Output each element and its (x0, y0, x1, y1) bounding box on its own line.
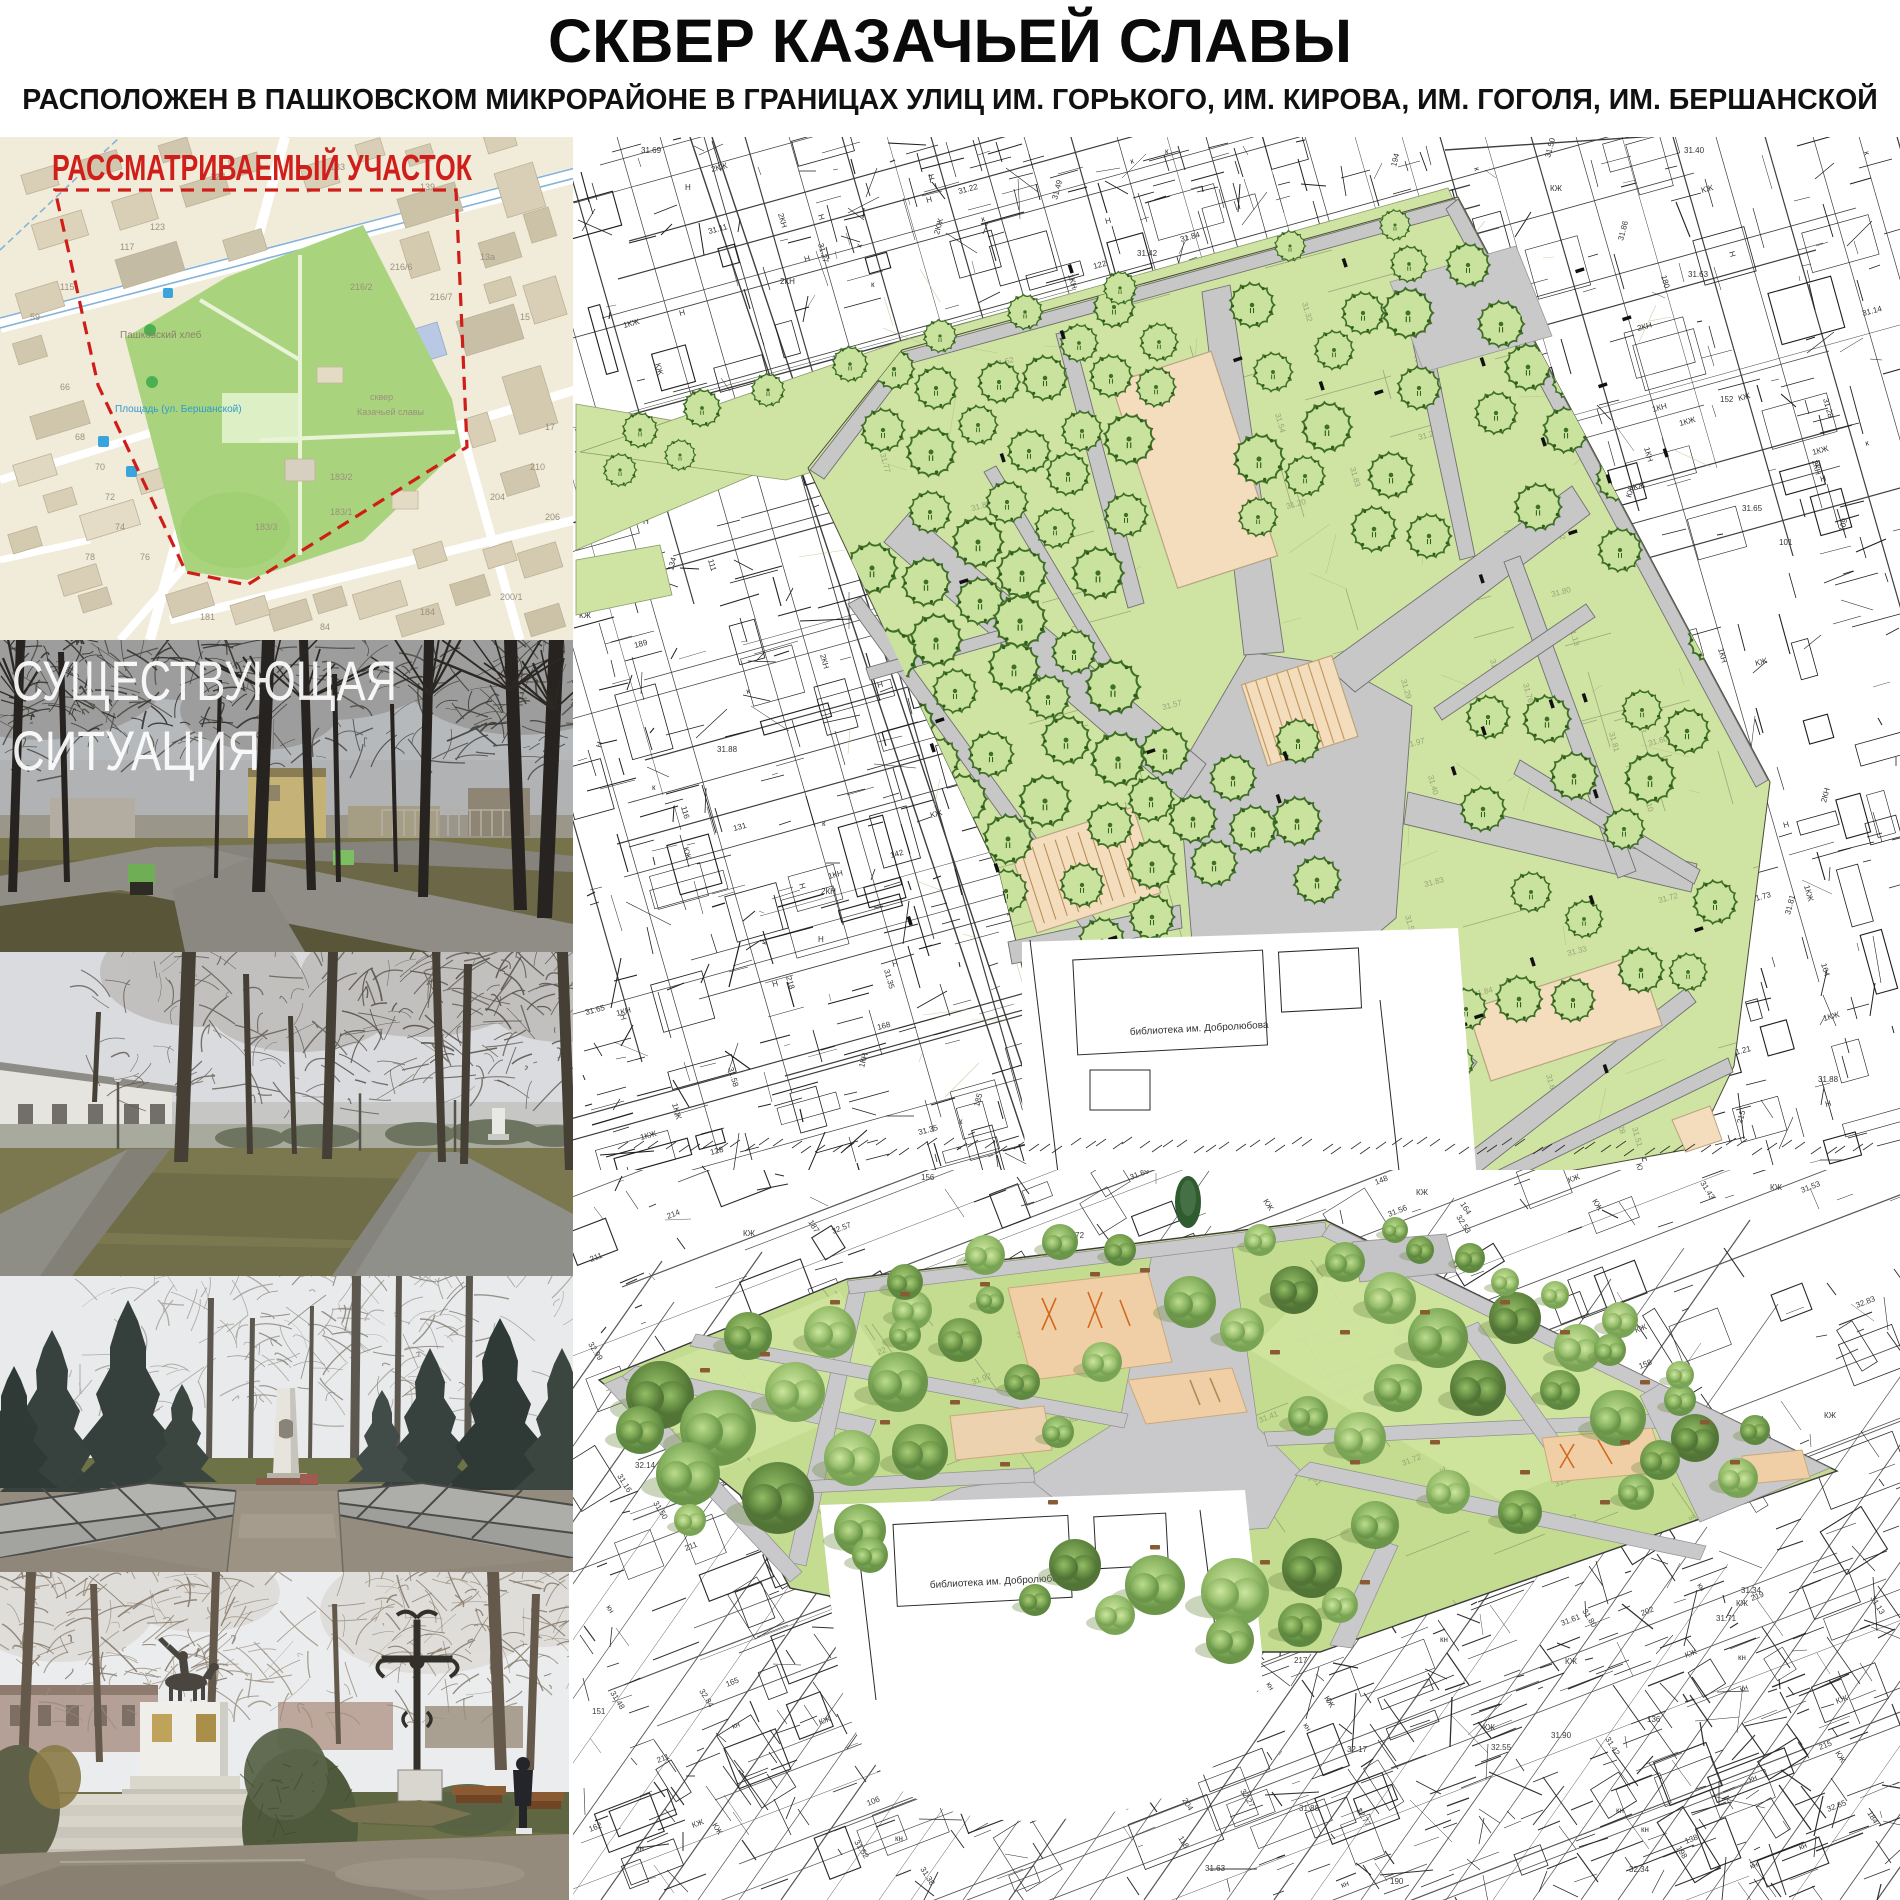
svg-text:13a: 13a (480, 252, 495, 262)
svg-text:32.17: 32.17 (1347, 1745, 1368, 1754)
svg-text:31.71: 31.71 (1716, 1614, 1737, 1623)
svg-text:Н: Н (818, 935, 824, 944)
svg-text:Казачьей славы: Казачьей славы (357, 407, 424, 417)
svg-text:210: 210 (530, 462, 545, 472)
svg-text:101: 101 (1779, 538, 1793, 547)
svg-text:151: 151 (592, 1707, 606, 1716)
svg-text:216/6: 216/6 (390, 262, 413, 272)
svg-text:сквер: сквер (370, 392, 393, 402)
svg-text:кн: кн (636, 1844, 644, 1853)
svg-text:217: 217 (1294, 1656, 1308, 1665)
svg-text:17: 17 (545, 422, 555, 432)
svg-text:31.88: 31.88 (717, 745, 738, 754)
svg-text:31.88: 31.88 (1299, 1804, 1320, 1813)
svg-text:78: 78 (85, 552, 95, 562)
svg-text:115: 115 (60, 282, 74, 292)
svg-text:кн: кн (1641, 1825, 1649, 1834)
svg-text:КЖ: КЖ (1736, 1599, 1749, 1608)
svg-text:КЖ: КЖ (1416, 1188, 1429, 1197)
svg-text:66: 66 (60, 382, 70, 392)
svg-text:72: 72 (105, 492, 115, 502)
svg-text:КЖ: КЖ (1483, 1723, 1496, 1732)
svg-text:183/2: 183/2 (330, 472, 353, 482)
svg-text:КЖ: КЖ (743, 1229, 756, 1238)
svg-text:136: 136 (1647, 1715, 1661, 1724)
svg-text:31.90: 31.90 (1551, 1731, 1572, 1740)
svg-text:74: 74 (115, 522, 125, 532)
svg-text:204: 204 (490, 492, 505, 502)
svg-text:кн: кн (895, 1834, 903, 1843)
svg-text:к: к (652, 783, 656, 792)
svg-text:КЖ: КЖ (1550, 184, 1563, 193)
svg-text:31.34: 31.34 (1741, 1586, 1762, 1595)
svg-text:кн: кн (1738, 1653, 1746, 1662)
svg-text:кн: кн (1616, 1806, 1624, 1815)
svg-text:31.65: 31.65 (1742, 504, 1763, 513)
svg-text:32.55: 32.55 (1491, 1743, 1512, 1752)
svg-text:Н: Н (685, 183, 691, 192)
svg-text:184: 184 (420, 607, 435, 617)
svg-text:32.14: 32.14 (635, 1461, 656, 1470)
svg-text:РАССМАТРИВАЕМЫЙ УЧАСТОК: РАССМАТРИВАЕМЫЙ УЧАСТОК (52, 146, 473, 188)
svg-text:183/1: 183/1 (330, 507, 353, 517)
svg-text:206: 206 (545, 512, 560, 522)
svg-text:70: 70 (95, 462, 105, 472)
svg-text:к: к (1165, 147, 1169, 156)
svg-text:2КН: 2КН (821, 887, 836, 896)
svg-text:15: 15 (520, 312, 530, 322)
svg-text:152: 152 (1720, 395, 1734, 404)
svg-text:31.63: 31.63 (1688, 270, 1709, 279)
svg-text:31.88: 31.88 (1818, 1075, 1839, 1084)
svg-text:КЖ: КЖ (1565, 1657, 1578, 1666)
svg-text:СУЩЕСТВУЮЩАЯ: СУЩЕСТВУЮЩАЯ (12, 649, 397, 712)
svg-text:200/1: 200/1 (500, 592, 523, 602)
svg-text:31.69: 31.69 (641, 146, 662, 155)
svg-text:к: к (871, 280, 875, 289)
svg-text:32.34: 32.34 (1629, 1865, 1650, 1874)
svg-text:2КН: 2КН (780, 277, 795, 286)
svg-text:КЖ: КЖ (1824, 1411, 1837, 1420)
svg-text:181: 181 (200, 612, 215, 622)
svg-text:216/7: 216/7 (430, 292, 453, 302)
svg-text:190: 190 (1390, 1877, 1404, 1886)
svg-text:216/2: 216/2 (350, 282, 373, 292)
svg-text:кн: кн (1440, 1635, 1448, 1644)
svg-text:Пашковский хлеб: Пашковский хлеб (120, 329, 202, 341)
svg-text:КЖ: КЖ (1770, 1183, 1783, 1192)
svg-text:59: 59 (30, 312, 40, 322)
svg-text:к: к (959, 1117, 963, 1126)
svg-text:123: 123 (150, 222, 165, 232)
svg-text:СИТУАЦИЯ: СИТУАЦИЯ (12, 719, 260, 782)
svg-text:31.63: 31.63 (1205, 1864, 1226, 1873)
svg-text:к: к (822, 819, 826, 828)
svg-text:76: 76 (140, 552, 150, 562)
svg-text:31.40: 31.40 (1684, 146, 1705, 155)
svg-text:84: 84 (320, 622, 330, 632)
svg-text:183/3: 183/3 (255, 522, 278, 532)
svg-text:31.42: 31.42 (1137, 249, 1158, 258)
svg-text:68: 68 (75, 432, 85, 442)
svg-text:Площадь (ул. Бершанской): Площадь (ул. Бершанской) (115, 404, 242, 415)
svg-text:117: 117 (120, 242, 134, 252)
svg-text:156: 156 (921, 1173, 935, 1182)
